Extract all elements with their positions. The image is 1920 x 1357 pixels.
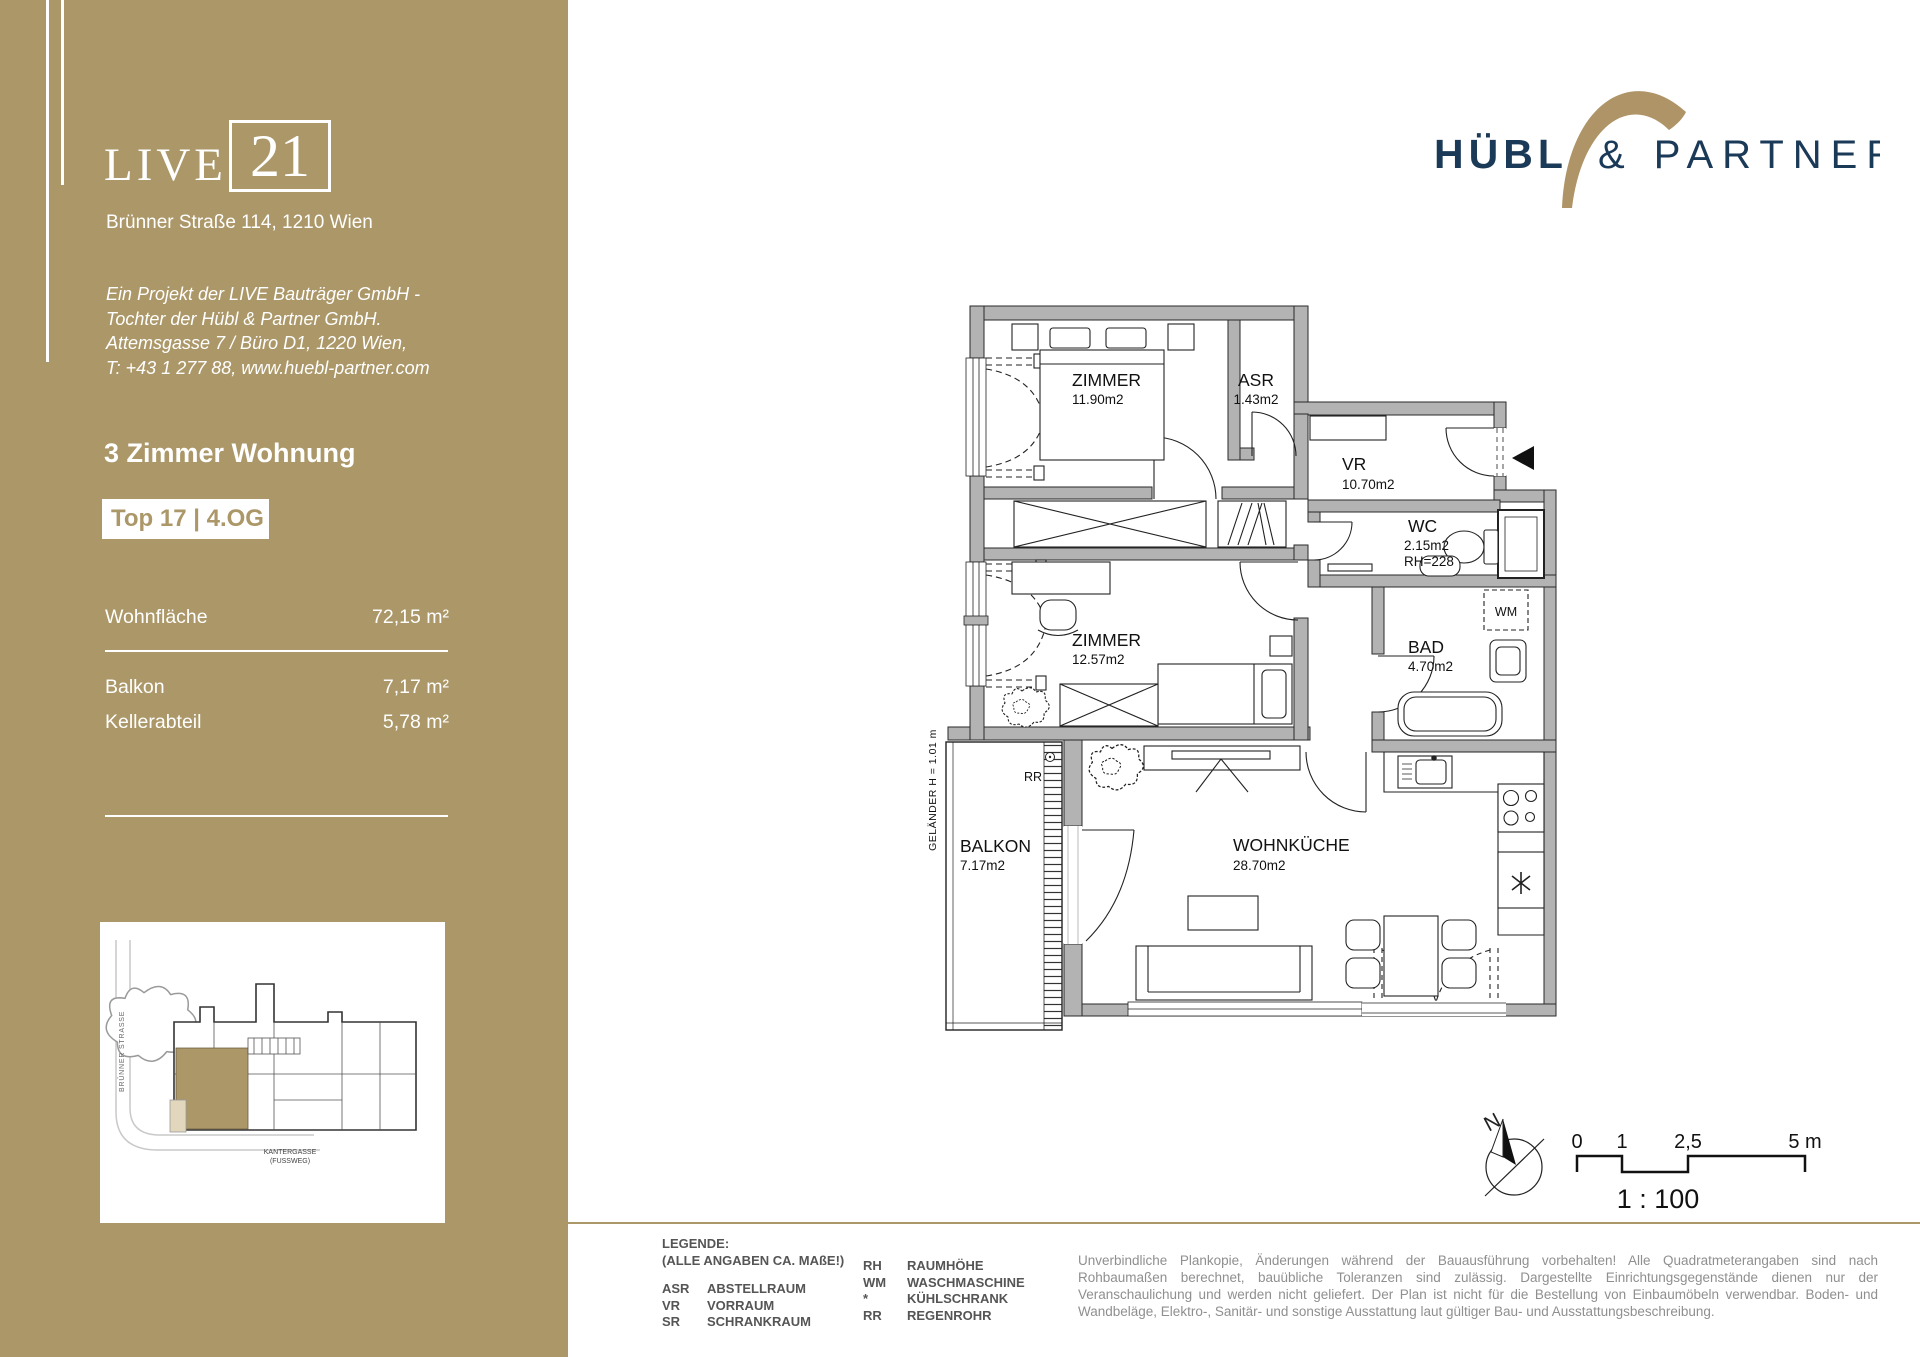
rr-label: RR	[1024, 770, 1042, 784]
tv-sideboard-icon	[1144, 746, 1300, 792]
sofa-icon	[1136, 946, 1312, 1000]
legend-term: SCHRANKRAUM	[707, 1314, 811, 1331]
unit-balcony-marker	[170, 1100, 186, 1132]
legend-abbr: *	[863, 1291, 907, 1308]
legend-column-2: RH RAUMHÖHE WM WASCHMASCHINE * KÜHLSCHRA…	[863, 1258, 1093, 1324]
north-compass-icon: N	[1478, 1105, 1558, 1205]
plant-icon	[1002, 688, 1049, 727]
site-plan-minimap: BRÜNNER STRASSE KANTERGASSE (FUSSWEG)	[100, 922, 445, 1223]
balcony	[946, 742, 1062, 1030]
coffee-table-icon	[1188, 896, 1258, 930]
room-area-asr: 1.43m2	[1233, 392, 1278, 407]
highlighted-unit	[176, 1048, 248, 1129]
footer-separator-line	[568, 1222, 1920, 1224]
area-label: Kellerabteil	[105, 711, 201, 734]
developer-info: Ein Projekt der LIVE Bauträger GmbH - To…	[106, 282, 430, 380]
live21-logo-text: LIVE	[104, 142, 227, 192]
legend-row: ASR ABSTELLRAUM	[662, 1281, 892, 1298]
legend-term: WASCHMASCHINE	[907, 1275, 1025, 1292]
legend-row: RR REGENROHR	[863, 1308, 1093, 1325]
scale-ratio: 1 : 100	[1617, 1184, 1700, 1214]
room-label-wc: WC	[1408, 516, 1437, 536]
room-label-zimmer1: ZIMMER	[1072, 370, 1141, 390]
area-row-kellerabteil: Kellerabteil 5,78 m²	[105, 711, 449, 734]
developer-info-line: T: +43 1 277 88, www.huebl-partner.com	[106, 356, 430, 381]
decorative-vertical-line	[61, 0, 64, 185]
plant-icon	[1089, 745, 1143, 790]
divider-line	[105, 815, 448, 817]
legend-row: * KÜHLSCHRANK	[863, 1291, 1093, 1308]
legend-term: REGENROHR	[907, 1308, 992, 1325]
bad-washbasin-icon	[1490, 640, 1526, 682]
room-area-zimmer1: 11.90m2	[1072, 392, 1124, 407]
room-area-balkon: 7.17m2	[960, 858, 1005, 873]
single-bed-icon	[1158, 636, 1292, 724]
legend-row: SR SCHRANKRAUM	[662, 1314, 892, 1331]
divider-line	[105, 650, 448, 652]
street-label: BRÜNNER STRASSE	[118, 1011, 126, 1092]
area-value: 72,15 m²	[372, 606, 449, 629]
legend: LEGENDE: (ALLE ANGABEN CA. MAßE!) ASR AB…	[662, 1236, 892, 1331]
legend-term: ABSTELLRAUM	[707, 1281, 806, 1298]
developer-info-line: Ein Projekt der LIVE Bauträger GmbH -	[106, 282, 430, 307]
brand-name-secondary: & PARTNER	[1598, 133, 1880, 177]
room-label-wohnkueche: WOHNKÜCHE	[1233, 835, 1350, 855]
railing-hatch	[1044, 742, 1062, 1030]
scale-tick: 0	[1571, 1131, 1582, 1153]
huebl-partner-logo: HÜBL & PARTNER	[1420, 40, 1880, 210]
path-label: (FUSSWEG)	[270, 1158, 310, 1165]
live21-logo-box: 21	[229, 120, 331, 192]
legend-abbr: SR	[662, 1314, 707, 1331]
unit-badge: Top 17 | 4.OG	[102, 499, 269, 539]
site-plan-drawing: BRÜNNER STRASSE KANTERGASSE (FUSSWEG)	[100, 922, 445, 1223]
scale-tick: 5 m	[1788, 1131, 1821, 1153]
wardrobe-icon	[1014, 501, 1206, 547]
floor-plan-drawing: ZIMMER 11.90m2 ASR 1.43m2 VR 10.70m2 WC …	[740, 290, 1600, 1050]
legend-abbr: ASR	[662, 1281, 707, 1298]
disclaimer-text: Unverbindliche Plankopie, Änderungen wäh…	[1078, 1252, 1878, 1320]
legend-abbr: VR	[662, 1298, 707, 1315]
floorplan-sheet: LIVE 21 Brünner Straße 114, 1210 Wien Ei…	[0, 0, 1920, 1357]
room-area-zimmer2: 12.57m2	[1072, 652, 1125, 667]
developer-info-line: Tochter der Hübl & Partner GmbH.	[106, 307, 430, 332]
rain-pipe-dot	[1049, 756, 1051, 758]
legend-abbr: WM	[863, 1275, 907, 1292]
kitchen-sink-icon	[1398, 756, 1452, 788]
installation-shaft	[1498, 510, 1544, 578]
radiator-icon	[1328, 564, 1372, 571]
legend-term: KÜHLSCHRANK	[907, 1291, 1008, 1308]
project-address: Brünner Straße 114, 1210 Wien	[106, 212, 373, 234]
room-label-vr: VR	[1342, 454, 1366, 474]
room-area-wc: 2.15m2	[1404, 538, 1449, 553]
path-label: KANTERGASSE	[264, 1149, 317, 1156]
brand-name-primary: HÜBL	[1434, 131, 1568, 177]
legend-row: WM WASCHMASCHINE	[863, 1275, 1093, 1292]
legend-term: RAUMHÖHE	[907, 1258, 984, 1275]
room-label-balkon: BALKON	[960, 836, 1031, 856]
bathtub-icon	[1398, 692, 1502, 736]
dining-set-icon	[1346, 916, 1476, 996]
wm-label: WM	[1495, 605, 1517, 619]
sidebar: LIVE 21 Brünner Straße 114, 1210 Wien Ei…	[0, 0, 568, 1357]
area-value: 5,78 m²	[383, 711, 449, 734]
legend-row: RH RAUMHÖHE	[863, 1258, 1093, 1275]
scale-tick: 2,5	[1674, 1131, 1702, 1153]
shelf-hatched-icon	[1218, 501, 1286, 547]
room-label-bad: BAD	[1408, 637, 1444, 657]
scale-tick: 1	[1616, 1131, 1627, 1153]
legend-abbr: RH	[863, 1258, 907, 1275]
room-note-wc: RH=228	[1404, 554, 1454, 569]
room-label-asr: ASR	[1238, 370, 1274, 390]
area-label: Balkon	[105, 676, 165, 699]
area-label: Wohnfläche	[105, 606, 208, 629]
live21-logo: LIVE 21	[104, 120, 331, 192]
legend-term: VORRAUM	[707, 1298, 774, 1315]
scale-bar-line	[1577, 1156, 1805, 1172]
scale-bar: 0 1 2,5 5 m 1 : 100	[1558, 1120, 1858, 1220]
apartment-type-title: 3 Zimmer Wohnung	[104, 438, 356, 469]
legend-subtitle: (ALLE ANGABEN CA. MAßE!)	[662, 1253, 892, 1270]
room-area-vr: 10.70m2	[1342, 477, 1395, 492]
room-area-wohnkueche: 28.70m2	[1233, 858, 1286, 873]
wardrobe-icon	[1060, 684, 1158, 726]
area-row-balkon: Balkon 7,17 m²	[105, 676, 449, 699]
entrance-arrow-icon	[1512, 446, 1534, 470]
legend-row: VR VORRAUM	[662, 1298, 892, 1315]
decorative-vertical-line	[46, 0, 49, 362]
developer-info-line: Attemsgasse 7 / Büro D1, 1220 Wien,	[106, 331, 430, 356]
area-row-wohnflaeche: Wohnfläche 72,15 m²	[105, 606, 449, 629]
desk-and-chair-icon	[1012, 562, 1110, 636]
fridge-icon	[1498, 852, 1544, 908]
room-label-zimmer2: ZIMMER	[1072, 630, 1141, 650]
gelaender-label: GELÄNDER H = 1.01 m	[927, 729, 939, 851]
legend-abbr: RR	[863, 1308, 907, 1325]
area-value: 7,17 m²	[383, 676, 449, 699]
legend-title: LEGENDE:	[662, 1236, 892, 1253]
compass-needle-dark	[1503, 1119, 1516, 1165]
hall-shelf-icon	[1310, 416, 1386, 440]
room-area-bad: 4.70m2	[1408, 659, 1453, 674]
stove-icon	[1498, 784, 1544, 832]
